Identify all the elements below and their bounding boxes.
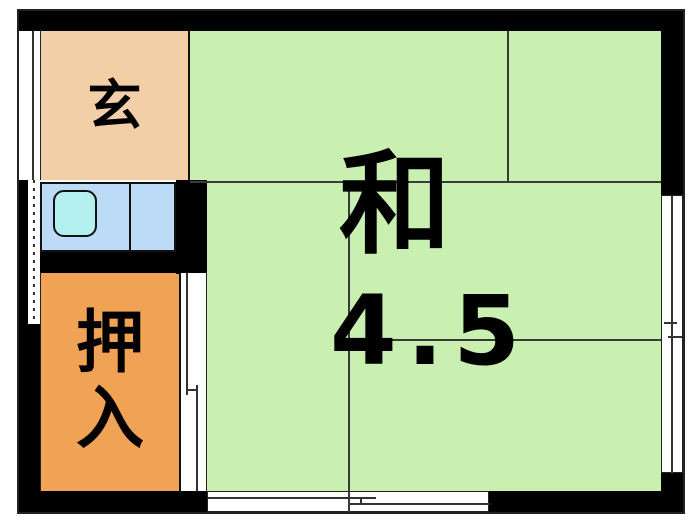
bottom-wall-left: [19, 491, 207, 512]
right-window-tick-a: [664, 322, 677, 324]
dotted-boundary: [28, 180, 40, 324]
kitchen-counter-divider: [129, 184, 131, 250]
tatami-line-v1: [507, 31, 509, 183]
floorplan-canvas: 玄 押 入: [0, 0, 700, 525]
kitchen-counter: [40, 182, 176, 252]
floorplan: 玄 押 入: [17, 9, 685, 514]
bottom-window-tick: [360, 497, 362, 505]
left-wall-mid: [19, 180, 28, 324]
entrance-label: 玄: [88, 79, 142, 133]
kitchen-sink: [53, 190, 97, 237]
right-window-sash-a: [671, 196, 673, 348]
entrance-room: 玄: [40, 31, 190, 180]
dotted-boundary-line: [33, 180, 35, 324]
entrance-door: [19, 31, 40, 180]
bottom-wall-right: [489, 491, 683, 512]
fusuma-panel-line-b: [196, 385, 198, 491]
right-window-tick-b: [668, 336, 682, 338]
kitchen-wall-band: [40, 252, 207, 273]
right-window-sash-b: [671, 336, 673, 474]
entrance-door-line: [32, 31, 34, 180]
bottom-window-sash-b: [348, 503, 490, 505]
main-room-size-label: 4.5: [300, 283, 560, 379]
left-wall-lower: [19, 324, 40, 491]
top-wall: [19, 11, 683, 31]
closet-fusuma-door: [179, 273, 207, 491]
main-room-type-label: 和: [315, 151, 475, 259]
right-sliding-window: [661, 195, 683, 473]
closet-label-char2: 入: [76, 382, 144, 458]
closet-label-char1: 押: [76, 306, 144, 382]
fusuma-panel-line-a: [186, 273, 188, 395]
fusuma-overlap-tick: [186, 389, 198, 391]
bottom-window-sash-a: [208, 497, 376, 499]
closet-room: 押 入: [40, 273, 179, 491]
right-wall-upper: [661, 11, 683, 195]
